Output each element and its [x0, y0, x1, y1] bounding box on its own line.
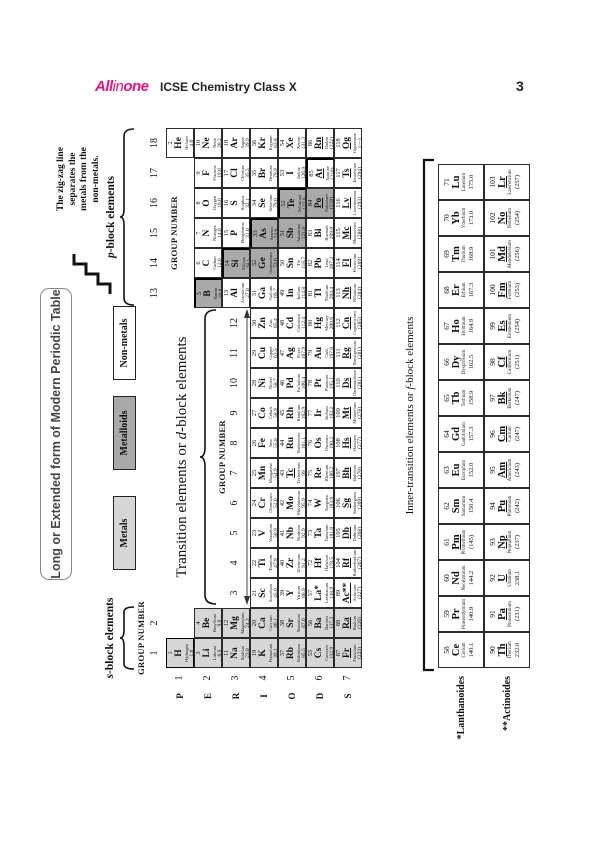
- element-cell-Lv: 116LvLivermorium(293): [334, 188, 362, 218]
- atomic-mass: (247): [514, 417, 521, 451]
- legend-item-metal: Metals: [113, 496, 136, 570]
- element-cell-Pd: 46PdPalladium106.4: [278, 368, 306, 398]
- actinoide-cell-Pa: 91PaProtactinium(231): [484, 596, 530, 632]
- element-cell-Ta: 73TaTantalum181.0: [306, 518, 334, 548]
- element-symbol: Cf: [497, 345, 508, 379]
- periods-letter: D: [315, 690, 326, 702]
- element-symbol: Fl: [343, 249, 353, 277]
- element-symbol: Ba: [315, 609, 325, 637]
- atomic-number: 92: [488, 561, 497, 595]
- element-symbol: Er: [451, 273, 462, 307]
- element-cell-Db: 105DbDubnium(268): [334, 518, 362, 548]
- element-cell-Rn: 86RnRadon(222): [306, 128, 334, 158]
- periodic-table-figure: Long or Extended form of Modern Periodic…: [16, 108, 576, 818]
- element-symbol: C: [203, 249, 213, 277]
- element-symbol: Pu: [497, 489, 508, 523]
- atomic-number: 94: [488, 489, 497, 523]
- element-symbol: Cl: [231, 159, 241, 187]
- group-number-4: 4: [229, 548, 243, 578]
- actinoide-cell-Th: 90ThThorium232.0: [484, 632, 530, 668]
- zigzag-note-line: metals from the: [79, 115, 91, 243]
- p-block-label: p-block elements: [105, 128, 117, 306]
- atomic-number: 67: [442, 309, 451, 343]
- lanthanoide-cell-Tb: 65TbTerbium158.9: [438, 380, 484, 416]
- atomic-mass: 162.5: [468, 345, 475, 379]
- element-symbol: Ac**: [343, 579, 353, 607]
- element-cell-Rf: 104RfRutherfordium(267): [334, 548, 362, 578]
- element-cell-S: 16SSulphur32.1: [222, 188, 250, 218]
- period-number-1: 1: [174, 670, 186, 686]
- atomic-number: 58: [442, 633, 451, 667]
- atomic-number: 90: [488, 633, 497, 667]
- element-cell-Co: 27CoCobalt58.9: [250, 398, 278, 428]
- atomic-number: 71: [442, 165, 451, 199]
- element-symbol: Os: [315, 429, 325, 457]
- element-cell-Cs: 55CsCaesium132.9: [306, 638, 334, 668]
- element-symbol: Pd: [287, 369, 297, 397]
- element-symbol: Cm: [497, 417, 508, 451]
- periods-letter: R: [231, 690, 242, 702]
- element-symbol: Db: [343, 519, 353, 547]
- lanthanoide-cell-Ce: 58CeCerium140.1: [438, 632, 484, 668]
- element-symbol: Zn: [259, 309, 269, 337]
- element-symbol: Sg: [343, 489, 353, 517]
- element-cell-Mg: 12MgMagnesium24.3: [222, 608, 250, 638]
- element-symbol: Mg: [231, 609, 241, 637]
- atomic-mass: 140.9: [468, 597, 475, 631]
- element-symbol: W: [315, 489, 325, 517]
- element-symbol: Hf: [315, 549, 325, 577]
- element-symbol: Se: [259, 189, 269, 217]
- element-symbol: Ar: [231, 129, 241, 157]
- element-cell-Ne: 10NeNeon20.2: [194, 128, 222, 158]
- atomic-mass: 152.0: [468, 453, 475, 487]
- atomic-mass: (254): [514, 201, 521, 235]
- element-symbol: U: [497, 561, 508, 595]
- element-symbol: Dy: [451, 345, 462, 379]
- element-symbol: Pt: [315, 369, 325, 397]
- element-cell-Hf: 72HfHafnium178.5: [306, 548, 334, 578]
- element-cell-Hg: 80HgMercury200.6: [306, 308, 334, 338]
- atomic-number: 96: [488, 417, 497, 451]
- group-number-3: 3: [229, 578, 243, 608]
- element-cell-Si: 14SiSilicon28.1: [222, 248, 250, 278]
- atomic-number: 100: [488, 273, 497, 307]
- atomic-mass: (285): [357, 309, 362, 337]
- actinoide-cell-Lr: 103LrLawrencium(257): [484, 164, 530, 200]
- element-cell-Sr: 38SrStrontium87.6: [278, 608, 306, 638]
- group-number-11: 11: [229, 338, 243, 368]
- element-cell-Au: 79AuGold197.0: [306, 338, 334, 368]
- element-symbol: V: [259, 519, 269, 547]
- element-cell-Pb: 82PbLead207.2: [306, 248, 334, 278]
- atomic-mass: 140.1: [468, 633, 475, 667]
- element-symbol: Cr: [259, 489, 269, 517]
- actinoide-cell-Cf: 98CfCalifornium(251): [484, 344, 530, 380]
- actinoide-cell-U: 92UUranium238.1: [484, 560, 530, 596]
- element-symbol: Fm: [497, 273, 508, 307]
- element-cell-V: 23VVanadium50.9: [250, 518, 278, 548]
- atomic-mass: 167.3: [468, 273, 475, 307]
- element-cell-Bh: 107BhBohrium(270): [334, 458, 362, 488]
- element-cell-La: 57La*Lanthanum138.9: [306, 578, 334, 608]
- element-symbol: Mc: [343, 219, 353, 247]
- element-cell-Os: 76OsOsmium190.2: [306, 428, 334, 458]
- element-symbol: No: [497, 201, 508, 235]
- element-symbol: Kr: [259, 129, 269, 157]
- element-cell-Ts: 117TsTennessine(294): [334, 158, 362, 188]
- atomic-mass: (281): [357, 339, 362, 367]
- element-symbol: Yb: [451, 201, 462, 235]
- element-symbol: Mt: [343, 399, 353, 427]
- element-symbol: Lr: [497, 165, 508, 199]
- element-symbol: Ts: [343, 159, 353, 187]
- element-cell-Tl: 81TlThallium204.4: [306, 278, 334, 308]
- element-cell-Te: 52TeTellurium127.6: [278, 188, 306, 218]
- group-number-7: 7: [229, 458, 243, 488]
- element-symbol: Og: [343, 129, 353, 157]
- element-cell-Nb: 41NbNiobium92.9: [278, 518, 306, 548]
- element-symbol: Tl: [315, 279, 325, 307]
- element-cell-Zn: 30ZnZinc65.4: [250, 308, 278, 338]
- element-symbol: In: [287, 279, 297, 307]
- legend-item-nonmetal: Non-metals: [113, 306, 136, 380]
- p-block-group-number-label: GROUP NUMBER: [169, 168, 179, 298]
- atomic-mass: 173.0: [468, 201, 475, 235]
- element-symbol: Cn: [343, 309, 353, 337]
- group-number-12: 12: [229, 308, 243, 338]
- d-block-label: Transition elements or d-block elements: [174, 311, 191, 603]
- page-header: Allinone ICSE Chemistry Class X 3: [0, 0, 600, 100]
- d-block-group-number-label: GROUP NUMBER: [217, 392, 227, 522]
- element-cell-Rh: 45RhRhodium102.9: [278, 398, 306, 428]
- atomic-mass: (145): [468, 525, 475, 559]
- element-cell-I: 53IIodine126.9: [278, 158, 306, 188]
- element-symbol: Gd: [451, 417, 462, 451]
- atomic-mass: (293): [357, 189, 362, 217]
- atomic-mass: 238.1: [514, 561, 521, 595]
- d-block-brace: [200, 309, 217, 605]
- element-symbol: Al: [231, 279, 241, 307]
- atomic-number: 95: [488, 453, 497, 487]
- element-symbol: O: [203, 189, 213, 217]
- atomic-number: 93: [488, 525, 497, 559]
- element-cell-Bi: 83BiBismuth209.0: [306, 218, 334, 248]
- periods-letter: S: [343, 690, 354, 702]
- atomic-mass: (284): [357, 279, 362, 307]
- element-symbol: S: [231, 189, 241, 217]
- element-symbol: Hs: [343, 429, 353, 457]
- element-symbol: Tc: [287, 459, 297, 487]
- element-symbol: Sc: [259, 579, 269, 607]
- element-cell-O: 8OOxygen16.0: [194, 188, 222, 218]
- element-symbol: Tm: [451, 237, 462, 271]
- element-cell-Ba: 56BaBarium137.3: [306, 608, 334, 638]
- element-cell-Cn: 112CnCopernicium(285): [334, 308, 362, 338]
- group-number-18: 18: [149, 128, 163, 158]
- element-symbol: Sr: [287, 609, 297, 637]
- element-symbol: Sn: [287, 249, 297, 277]
- group-number-9: 9: [229, 398, 243, 428]
- atomic-mass: (—): [357, 129, 362, 157]
- element-symbol: Cd: [287, 309, 297, 337]
- group-number-10: 10: [229, 368, 243, 398]
- group-number-2: 2: [149, 608, 163, 638]
- element-symbol: Lv: [343, 189, 353, 217]
- element-cell-At: 85AtAstatine(210): [306, 158, 334, 188]
- lanthanoide-cell-Tm: 69TmThulium168.9: [438, 236, 484, 272]
- atomic-mass: (242): [514, 489, 521, 523]
- element-symbol: Es: [497, 309, 508, 343]
- element-symbol: Bk: [497, 381, 508, 415]
- element-cell-H: 1HHydrogen1.0: [166, 638, 194, 668]
- element-symbol: Th: [497, 633, 508, 667]
- element-symbol: Bh: [343, 459, 353, 487]
- atomic-mass: (226): [357, 609, 362, 637]
- element-cell-Ac: 89Ac**Actinium(227): [334, 578, 362, 608]
- atomic-mass: 144.2: [468, 561, 475, 595]
- periods-letter: P: [175, 690, 186, 702]
- atomic-mass: (270): [357, 459, 362, 487]
- element-cell-Al: 13AlAluminium27.0: [222, 278, 250, 308]
- element-symbol: Bi: [315, 219, 325, 247]
- atomic-number: 59: [442, 597, 451, 631]
- group-number-16: 16: [149, 188, 163, 218]
- atomic-mass: (294): [357, 159, 362, 187]
- atomic-number: 68: [442, 273, 451, 307]
- element-symbol: Po: [315, 189, 325, 217]
- atomic-mass: (227): [357, 579, 362, 607]
- atomic-number: 65: [442, 381, 451, 415]
- atomic-number: 60: [442, 561, 451, 595]
- p-block-brace: [120, 128, 135, 306]
- f-block-bracket: [422, 158, 435, 672]
- element-symbol: F: [203, 159, 213, 187]
- logo-one: one: [123, 78, 148, 95]
- element-symbol: Ti: [259, 549, 269, 577]
- atomic-number: 103: [488, 165, 497, 199]
- element-cell-Cr: 24CrChromium52.0: [250, 488, 278, 518]
- period-number-2: 2: [202, 670, 214, 686]
- element-cell-Fr: 87FrFrancium(223): [334, 638, 362, 668]
- lanthanoide-cell-Ho: 67HoHolmium164.9: [438, 308, 484, 344]
- element-symbol: Sm: [451, 489, 462, 523]
- period-number-3: 3: [230, 670, 242, 686]
- element-symbol: Cs: [315, 639, 325, 667]
- element-cell-Kr: 36KrKrypton83.8: [250, 128, 278, 158]
- zigzag-note-line: non-metals.: [91, 115, 103, 243]
- element-cell-Hs: 108HsHassium(277): [334, 428, 362, 458]
- textbook-page: Allinone ICSE Chemistry Class X 3 Long o…: [0, 0, 600, 849]
- atomic-mass: 157.3: [468, 417, 475, 451]
- atomic-mass: (289): [357, 249, 362, 277]
- element-symbol: Na: [231, 639, 241, 667]
- group-number-1: 1: [149, 638, 163, 668]
- group-number-17: 17: [149, 158, 163, 188]
- atomic-mass: (277): [357, 429, 362, 457]
- group-number-6: 6: [229, 488, 243, 518]
- element-cell-Sb: 51SbAntimony121.8: [278, 218, 306, 248]
- element-cell-F: 9FFluorine19.0: [194, 158, 222, 188]
- element-symbol: Nb: [287, 519, 297, 547]
- element-cell-Cu: 29CuCopper63.5: [250, 338, 278, 368]
- element-symbol: Md: [497, 237, 508, 271]
- period-number-5: 5: [286, 670, 298, 686]
- actinoides-label: **Actinoides: [502, 676, 513, 788]
- atomic-mass: (268): [357, 519, 362, 547]
- element-symbol: B: [204, 280, 214, 307]
- element-cell-Nh: 113NhNihonium(284): [334, 278, 362, 308]
- lanthanoide-cell-Nd: 60NdNeodymium144.2: [438, 560, 484, 596]
- book-title: ICSE Chemistry Class X: [160, 80, 297, 94]
- element-cell-Re: 75ReRhenium186.2: [306, 458, 334, 488]
- element-symbol: Rh: [287, 399, 297, 427]
- atomic-mass: (254): [514, 309, 521, 343]
- atomic-mass: (253): [514, 273, 521, 307]
- element-symbol: Pb: [315, 249, 325, 277]
- element-cell-B: 5BBoron10.8: [194, 278, 222, 308]
- element-cell-Cl: 17ClChlorine35.5: [222, 158, 250, 188]
- element-cell-Ge: 32GeGermanium72.6: [250, 248, 278, 278]
- element-symbol: Pr: [451, 597, 462, 631]
- element-cell-Tc: 43TcTechnetium99: [278, 458, 306, 488]
- atomic-mass: 150.4: [468, 489, 475, 523]
- atomic-mass: (247): [514, 381, 521, 415]
- element-cell-Sg: 106SgSeaborgium(269): [334, 488, 362, 518]
- element-cell-W: 74WTungsten183.9: [306, 488, 334, 518]
- s-block-brace: [120, 606, 135, 670]
- atomic-mass: (251): [514, 345, 521, 379]
- element-symbol: Rb: [287, 639, 297, 667]
- periodic-table-landscape: Long or Extended form of Modern Periodic…: [16, 108, 576, 818]
- element-symbol: Pm: [451, 525, 462, 559]
- element-symbol: Eu: [451, 453, 462, 487]
- element-symbol: Be: [203, 609, 213, 637]
- element-cell-He: 2HeHelium4.0: [166, 128, 194, 158]
- element-symbol: Sb: [287, 219, 297, 247]
- atomic-mass: (278): [357, 399, 362, 427]
- lanthanoide-cell-Gd: 64GdGadolinium157.3: [438, 416, 484, 452]
- atomic-mass: 168.9: [468, 237, 475, 271]
- atomic-mass: (269): [357, 489, 362, 517]
- element-cell-Ni: 28NiNickel58.7: [250, 368, 278, 398]
- atomic-number: 62: [442, 489, 451, 523]
- actinoide-cell-Es: 99EsEinsteinium(254): [484, 308, 530, 344]
- element-symbol: Te: [288, 190, 298, 217]
- lanthanoide-cell-Dy: 66DyDysprosium162.5: [438, 344, 484, 380]
- atomic-mass: (256): [514, 237, 521, 271]
- element-cell-Ra: 88RaRadium(226): [334, 608, 362, 638]
- atomic-number: 99: [488, 309, 497, 343]
- element-symbol: Y: [287, 579, 297, 607]
- element-cell-Mc: 115McMoscovium(288): [334, 218, 362, 248]
- element-cell-Li: 3LiLithium6.9: [194, 638, 222, 668]
- element-symbol: Ni: [259, 369, 269, 397]
- zigzag-note-line: The zig-zag line: [56, 115, 68, 243]
- atomic-mass: 175.0: [468, 165, 475, 199]
- atomic-number: 61: [442, 525, 451, 559]
- lanthanoide-cell-Yb: 70YbYtterbium173.0: [438, 200, 484, 236]
- actinoide-cell-No: 102NoNobelium(254): [484, 200, 530, 236]
- element-cell-Br: 35BrBromine79.9: [250, 158, 278, 188]
- element-symbol: Tb: [451, 381, 462, 415]
- atomic-mass: 232.0: [514, 633, 521, 667]
- element-symbol: Ru: [287, 429, 297, 457]
- element-cell-In: 49InIndium114.8: [278, 278, 306, 308]
- page-number: 3: [516, 78, 524, 94]
- element-cell-Se: 34SeSelenium79.0: [250, 188, 278, 218]
- actinoide-cell-Pu: 94PuPlutonium(242): [484, 488, 530, 524]
- element-symbol: Mn: [259, 459, 269, 487]
- element-symbol: At: [316, 160, 326, 187]
- atomic-number: 97: [488, 381, 497, 415]
- lanthanoide-cell-Eu: 63EuEuropium152.0: [438, 452, 484, 488]
- atomic-number: 102: [488, 201, 497, 235]
- element-cell-Mt: 109MtMeitnerium(278): [334, 398, 362, 428]
- element-cell-Ca: 20CaCalcium40.1: [250, 608, 278, 638]
- element-symbol: Re: [315, 459, 325, 487]
- periods-letter: O: [287, 690, 298, 702]
- element-symbol: Fr: [343, 639, 353, 667]
- element-cell-N: 7NNitrogen14.0: [194, 218, 222, 248]
- atomic-mass: 158.9: [468, 381, 475, 415]
- periods-letter: I: [259, 690, 270, 702]
- element-symbol: Ce: [451, 633, 462, 667]
- element-cell-Cd: 48CdCadmium112.4: [278, 308, 306, 338]
- element-symbol: Ir: [315, 399, 325, 427]
- f-block-label: Inner-transition elements or f-block ele…: [404, 163, 416, 668]
- element-cell-Sc: 21ScScandium45.0: [250, 578, 278, 608]
- element-symbol: Rf: [343, 549, 353, 577]
- element-cell-As: 33AsArsenic74.9: [250, 218, 278, 248]
- atomic-mass: (231): [514, 597, 521, 631]
- element-symbol: Nh: [343, 279, 353, 307]
- element-symbol: Br: [259, 159, 269, 187]
- periods-letter: E: [203, 690, 214, 702]
- element-cell-Na: 11NaSodium23.0: [222, 638, 250, 668]
- atomic-mass: (237): [514, 525, 521, 559]
- element-symbol: Ga: [259, 279, 269, 307]
- atomic-number: 91: [488, 597, 497, 631]
- element-symbol: Lu: [451, 165, 462, 199]
- lanthanoide-cell-Pm: 61PmPromethium(145): [438, 524, 484, 560]
- element-symbol: Ca: [259, 609, 269, 637]
- element-cell-Ti: 22TiTitanium47.9: [250, 548, 278, 578]
- element-cell-Ds: 110DsDarmstadtium(281): [334, 368, 362, 398]
- element-cell-Mn: 25MnManganese54.9: [250, 458, 278, 488]
- element-symbol: Ge: [259, 249, 269, 277]
- group-number-5: 5: [229, 518, 243, 548]
- atomic-number: 101: [488, 237, 497, 271]
- atomic-mass: (243): [514, 453, 521, 487]
- element-symbol: As: [260, 220, 270, 247]
- period-number-4: 4: [258, 670, 270, 686]
- group-number-15: 15: [149, 218, 163, 248]
- element-symbol: Ra: [343, 609, 353, 637]
- element-symbol: P: [231, 219, 241, 247]
- element-cell-Pt: 78PtPlatinum195.1: [306, 368, 334, 398]
- atomic-mass: (267): [357, 549, 362, 577]
- element-symbol: H: [175, 639, 185, 667]
- element-symbol: I: [287, 159, 297, 187]
- element-cell-P: 15PPhosphorus31.0: [222, 218, 250, 248]
- element-symbol: Co: [259, 399, 269, 427]
- zigzag-note-line: separates the: [68, 115, 80, 243]
- element-cell-Fe: 26FeIron55.8: [250, 428, 278, 458]
- element-symbol: Mo: [287, 489, 297, 517]
- element-cell-Ar: 18ArArgon39.9: [222, 128, 250, 158]
- logo-in: in: [113, 78, 124, 95]
